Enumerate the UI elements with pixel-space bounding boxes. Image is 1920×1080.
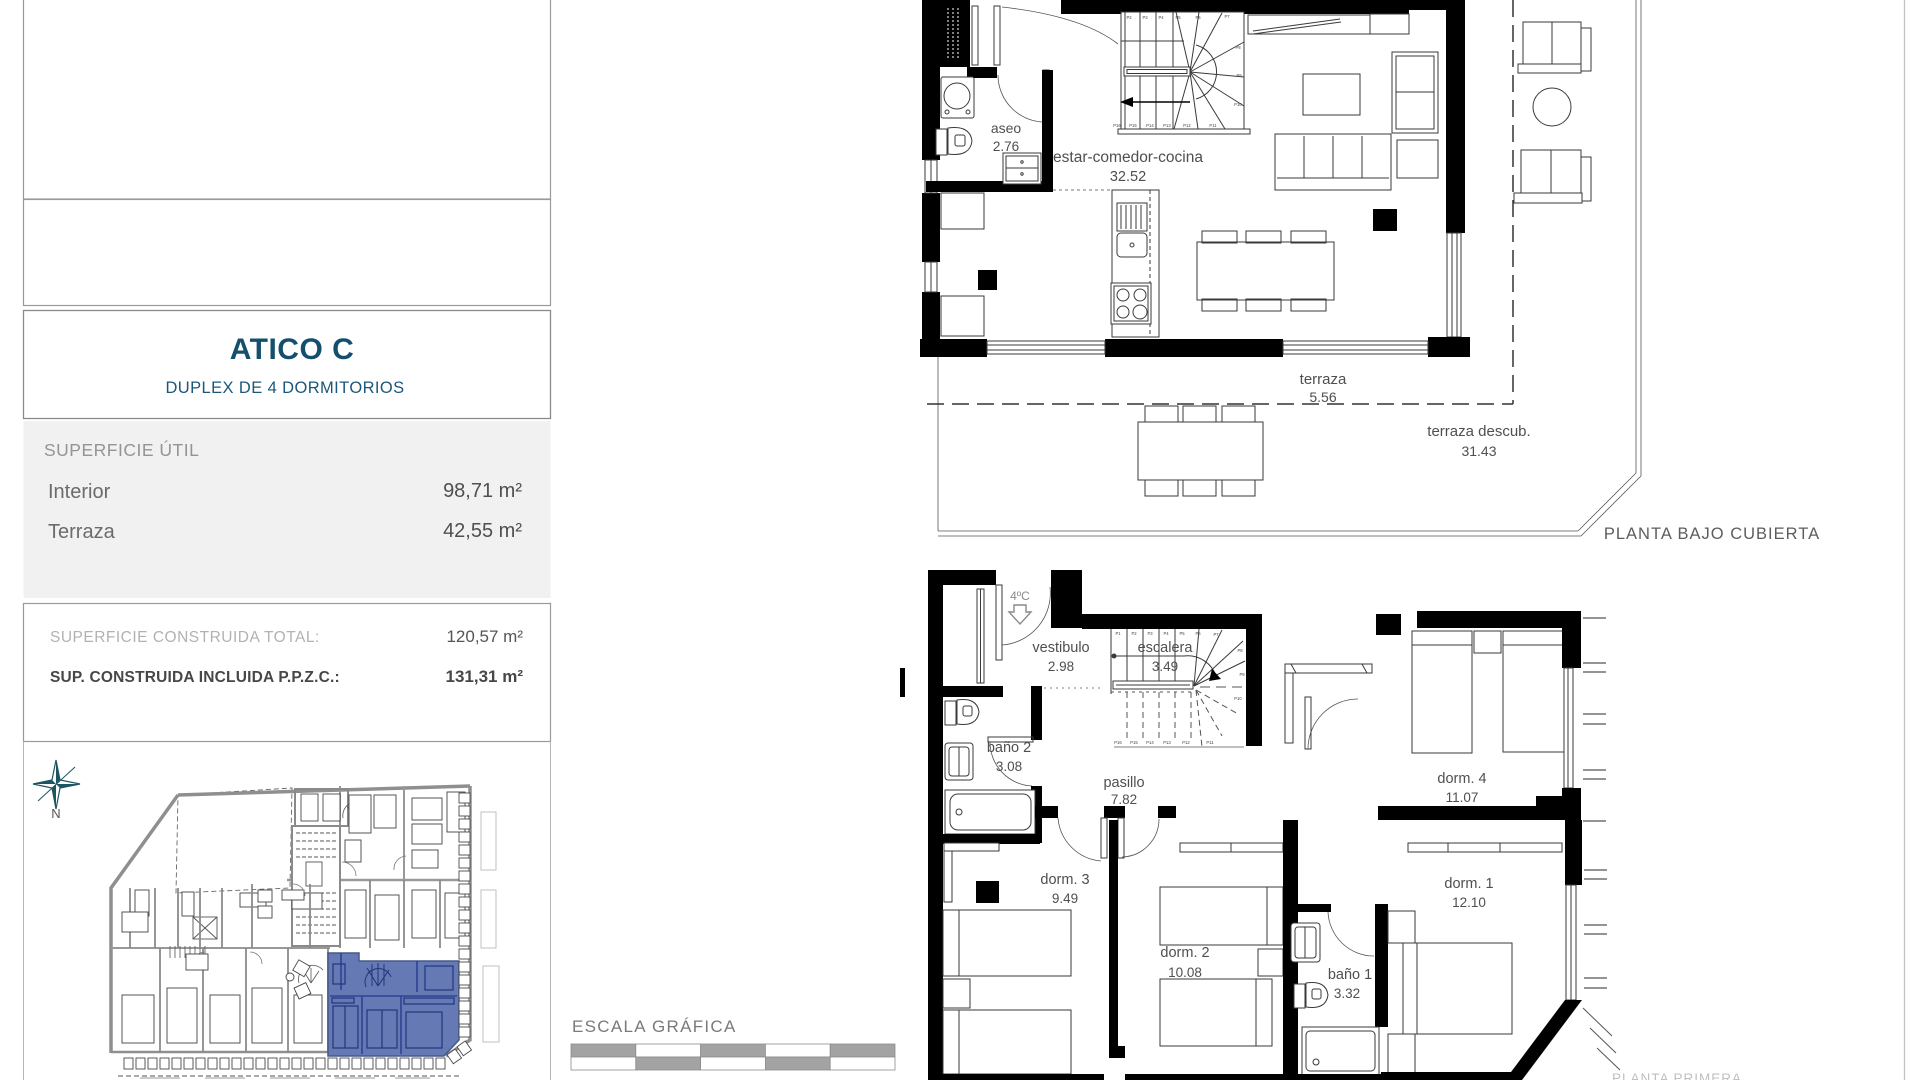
svg-text:P10: P10 [1234,102,1242,107]
svg-text:7.82: 7.82 [1111,792,1137,807]
svg-text:5.56: 5.56 [1309,389,1336,405]
svg-text:P15: P15 [1130,740,1138,745]
svg-text:3.49: 3.49 [1152,659,1178,674]
svg-text:P9: P9 [1239,672,1245,677]
svg-text:42,55 m²: 42,55 m² [443,520,522,542]
svg-text:3.08: 3.08 [996,759,1022,774]
svg-text:SUPERFICIE ÚTIL: SUPERFICIE ÚTIL [44,439,199,460]
svg-text:SUPERFICIE CONSTRUIDA TOTAL:: SUPERFICIE CONSTRUIDA TOTAL: [50,629,320,646]
svg-text:10.08: 10.08 [1168,965,1202,980]
svg-text:escalera: escalera [1138,640,1194,656]
svg-text:32.52: 32.52 [1110,169,1146,185]
svg-text:P2: P2 [1131,631,1137,636]
svg-text:P2: P2 [1126,15,1132,20]
svg-text:dorm. 1: dorm. 1 [1444,876,1493,892]
svg-text:31.43: 31.43 [1461,443,1496,459]
svg-text:P14: P14 [1146,740,1154,745]
svg-text:P7: P7 [1213,632,1219,637]
svg-text:11.07: 11.07 [1446,790,1479,805]
svg-text:P4: P4 [1158,15,1164,20]
svg-text:ESCALA GRÁFICA: ESCALA GRÁFICA [572,1017,737,1036]
svg-text:vestibulo: vestibulo [1032,640,1089,656]
svg-text:P1: P1 [1115,631,1121,636]
svg-text:P13: P13 [1163,123,1171,128]
svg-text:dorm. 3: dorm. 3 [1040,872,1089,888]
svg-text:baño 2: baño 2 [987,740,1031,756]
svg-text:baño 1: baño 1 [1328,967,1372,983]
svg-text:P12: P12 [1182,740,1190,745]
svg-text:DUPLEX DE 4 DORMITORIOS: DUPLEX DE 4 DORMITORIOS [165,379,404,397]
svg-text:12.10: 12.10 [1452,895,1486,910]
svg-text:3.32: 3.32 [1334,986,1360,1001]
svg-text:terraza descub.: terraza descub. [1427,423,1530,440]
svg-text:P4: P4 [1163,631,1169,636]
svg-text:P11: P11 [1206,740,1214,745]
svg-text:P6: P6 [1195,631,1201,636]
svg-text:P11: P11 [1209,123,1217,128]
svg-text:P10: P10 [1234,696,1242,701]
svg-text:P12: P12 [1183,123,1191,128]
svg-text:SUP. CONSTRUIDA INCLUIDA P.P.Z: SUP. CONSTRUIDA INCLUIDA P.P.Z.C.: [50,669,340,686]
svg-text:98,71 m²: 98,71 m² [443,480,522,502]
svg-text:P5: P5 [1179,631,1185,636]
svg-text:dorm. 4: dorm. 4 [1437,771,1486,787]
svg-text:N: N [51,806,60,821]
svg-text:ATICO C: ATICO C [230,333,355,366]
svg-text:Terraza: Terraza [48,521,116,543]
svg-text:P13: P13 [1163,740,1171,745]
svg-text:P8: P8 [1235,45,1241,50]
svg-text:P8: P8 [1237,648,1243,653]
svg-text:P7: P7 [1224,14,1230,19]
svg-text:estar-comedor-cocina: estar-comedor-cocina [1053,149,1203,166]
svg-text:P9: P9 [1236,73,1242,78]
svg-text:aseo: aseo [991,120,1022,136]
svg-text:dorm. 2: dorm. 2 [1160,945,1209,961]
svg-text:P3: P3 [1147,631,1153,636]
svg-text:4ºC: 4ºC [1010,589,1030,603]
svg-text:P16: P16 [1114,740,1122,745]
svg-text:120,57 m²: 120,57 m² [446,627,523,646]
svg-text:pasillo: pasillo [1103,775,1144,791]
svg-text:PLANTA PRIMERA: PLANTA PRIMERA [1612,1071,1742,1080]
svg-text:P5: P5 [1175,15,1181,20]
svg-text:PLANTA BAJO CUBIERTA: PLANTA BAJO CUBIERTA [1604,525,1820,543]
svg-text:P6: P6 [1195,15,1201,20]
svg-text:P15: P15 [1129,123,1137,128]
svg-text:131,31 m²: 131,31 m² [446,667,524,686]
svg-text:Interior: Interior [48,481,111,503]
svg-text:P14: P14 [1146,123,1154,128]
svg-text:2.76: 2.76 [993,139,1019,154]
svg-text:P16: P16 [1113,123,1121,128]
svg-text:P3: P3 [1142,15,1148,20]
svg-text:2.98: 2.98 [1048,659,1074,674]
svg-text:9.49: 9.49 [1052,891,1078,906]
svg-text:terraza: terraza [1300,371,1347,388]
